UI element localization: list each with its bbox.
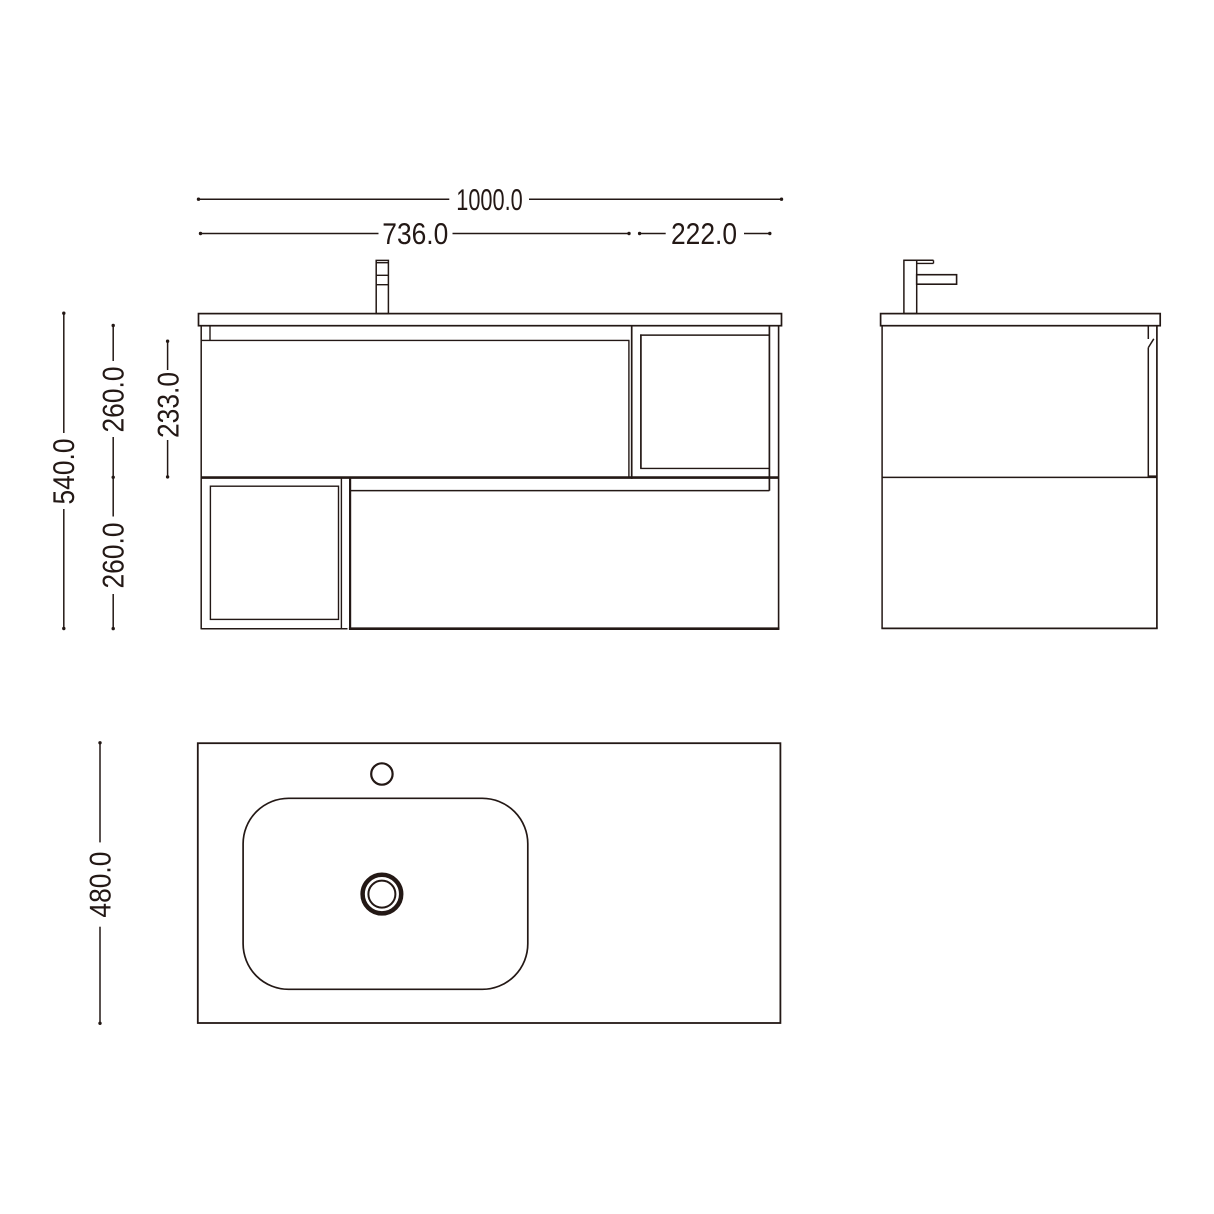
- svg-text:260.0: 260.0: [98, 367, 131, 433]
- svg-text:233.0: 233.0: [152, 372, 185, 438]
- svg-text:736.0: 736.0: [382, 218, 448, 251]
- svg-text:222.0: 222.0: [671, 218, 737, 251]
- svg-text:260.0: 260.0: [98, 523, 131, 589]
- svg-text:1000.0: 1000.0: [456, 184, 523, 217]
- svg-text:480.0: 480.0: [84, 852, 117, 918]
- svg-text:540.0: 540.0: [48, 439, 81, 505]
